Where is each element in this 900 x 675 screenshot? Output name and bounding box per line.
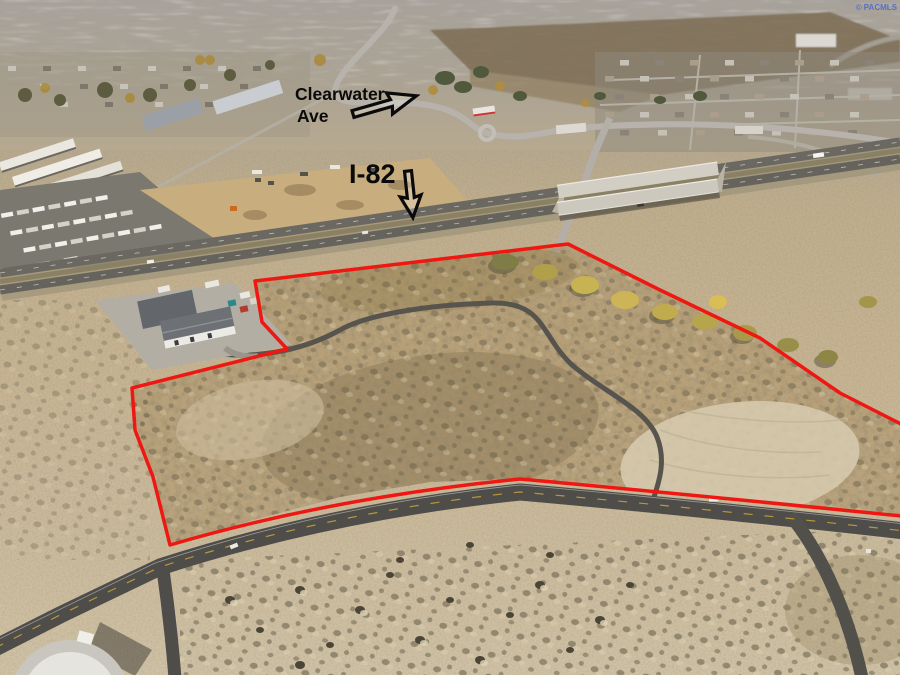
aerial-photo-svg: Clearwater Ave I-82 © PACMLS: [0, 0, 900, 675]
aerial-photo: Clearwater Ave I-82 © PACMLS: [0, 0, 900, 675]
watermark: © PACMLS: [856, 3, 898, 12]
road-sign: [866, 549, 871, 553]
clearwater-ave-label-line1: Clearwater: [295, 84, 385, 104]
i82-label: I-82: [349, 159, 396, 189]
commercial-building: [735, 126, 763, 134]
clearwater-ave-label-line2: Ave: [297, 106, 329, 126]
orange-container: [230, 206, 237, 211]
